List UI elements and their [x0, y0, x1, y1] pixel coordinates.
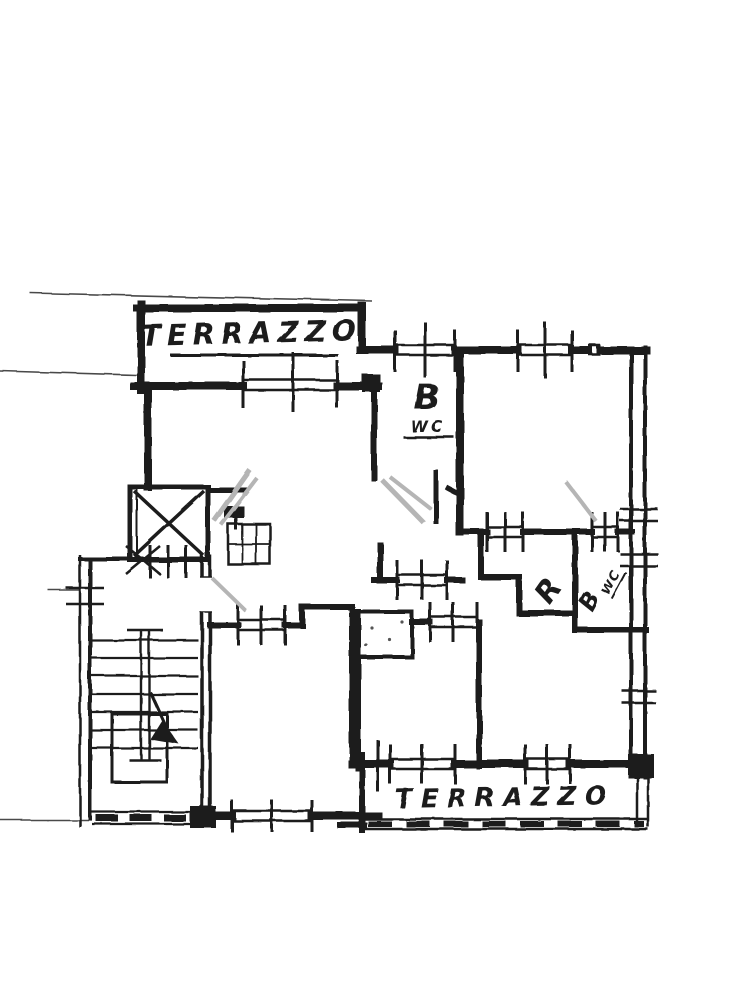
stairwell-right-wall — [200, 555, 212, 822]
wall-closet — [358, 612, 412, 657]
bathroom-top-label-b: B — [414, 378, 440, 418]
stairwell — [80, 555, 198, 827]
right-double-wall — [631, 347, 645, 777]
scanned-floor-plan-page: TERRAZZO B WC R B WC TERRAZZO — [0, 0, 750, 1000]
terrace-top-label: TERRAZZO — [141, 313, 363, 353]
staircase-steps-icon — [92, 630, 198, 782]
floor-plan-drawing: TERRAZZO B WC R B WC TERRAZZO — [0, 0, 750, 1000]
storage-label-r: R — [528, 572, 570, 611]
terrace-bottom-label: TERRAZZO — [395, 781, 615, 815]
stairs-direction-arrow-icon — [150, 692, 179, 744]
service-fixtures — [224, 487, 459, 564]
bathroom-top-label-wc: WC — [410, 417, 445, 436]
